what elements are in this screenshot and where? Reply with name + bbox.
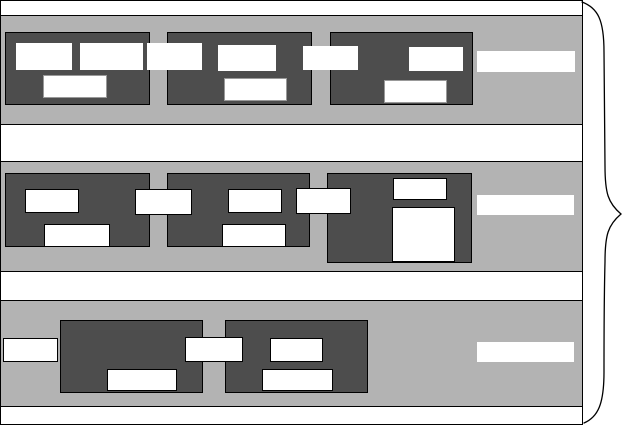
curly-brace-path (582, 2, 621, 423)
lane2-b1-slot-b (44, 224, 110, 247)
lane3-label-bar (477, 342, 574, 362)
lane2-b3-slot-a (393, 178, 447, 200)
lane1-b2-slot-a (218, 45, 276, 71)
lane3-b1-slot-a (107, 369, 177, 391)
lane3-input-stub (3, 338, 58, 362)
lane1-b2-slot-b (224, 78, 287, 101)
lane2-b1-slot-a (25, 189, 79, 213)
lane1-label-bar (477, 51, 575, 72)
lane2-b2-slot-b (222, 224, 286, 247)
lane1-b1-slot-b (80, 43, 143, 70)
lane3-b2-slot-b (262, 369, 333, 391)
lane1-link-2 (303, 46, 358, 70)
lane2-b3-slot-b (392, 207, 455, 262)
lane1-link-1 (147, 43, 202, 70)
lane2-b2-slot-a (228, 189, 282, 213)
lane3-b2-slot-a (270, 338, 323, 362)
lane1-b3-slot-b (384, 80, 447, 103)
lane2-link-2 (296, 188, 351, 214)
lane1-b1-slot-c (43, 75, 107, 98)
diagram-canvas (0, 0, 625, 425)
lane1-b3-slot-a (409, 47, 463, 71)
lane2-label-bar (477, 195, 574, 215)
lane1-b1-slot-a (16, 43, 72, 70)
lane2-link-1 (135, 189, 192, 215)
lane3-link-1 (185, 337, 243, 362)
